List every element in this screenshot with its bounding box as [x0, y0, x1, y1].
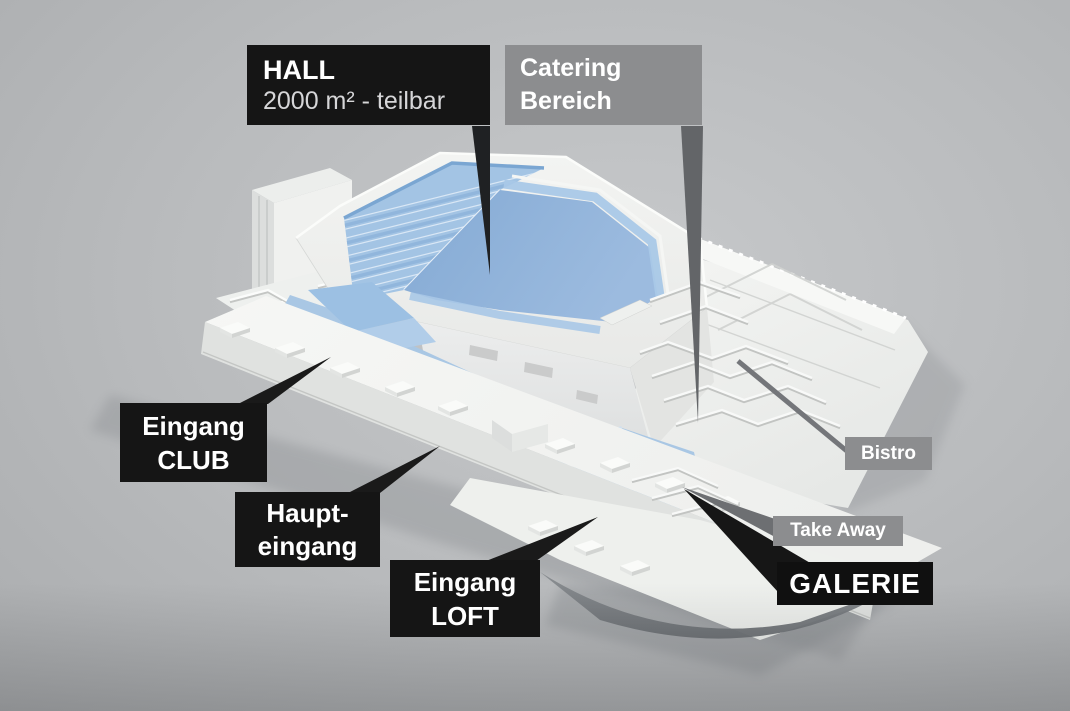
venue-diagram: HALL 2000 m² - teilbar Catering Bereich … [0, 0, 1070, 711]
haupteingang-line2: eingang [258, 530, 358, 563]
label-galerie: GALERIE [777, 562, 933, 605]
loft-line1: Eingang [414, 565, 517, 599]
catering-line1: Catering [520, 52, 702, 85]
club-line2: CLUB [157, 443, 229, 477]
hall-title: HALL [263, 54, 490, 86]
catering-line2: Bereich [520, 85, 702, 118]
label-haupteingang: Haupt- eingang [235, 492, 380, 567]
label-eingang-loft: Eingang LOFT [390, 560, 540, 637]
label-catering-bereich: Catering Bereich [505, 45, 702, 125]
label-take-away: Take Away [773, 516, 903, 546]
label-hall: HALL 2000 m² - teilbar [247, 45, 490, 125]
hall-subtitle: 2000 m² - teilbar [263, 86, 490, 116]
club-line1: Eingang [142, 409, 245, 443]
haupteingang-line1: Haupt- [266, 497, 348, 530]
label-eingang-club: Eingang CLUB [120, 403, 267, 482]
loft-line2: LOFT [431, 599, 499, 633]
label-bistro: Bistro [845, 437, 932, 470]
